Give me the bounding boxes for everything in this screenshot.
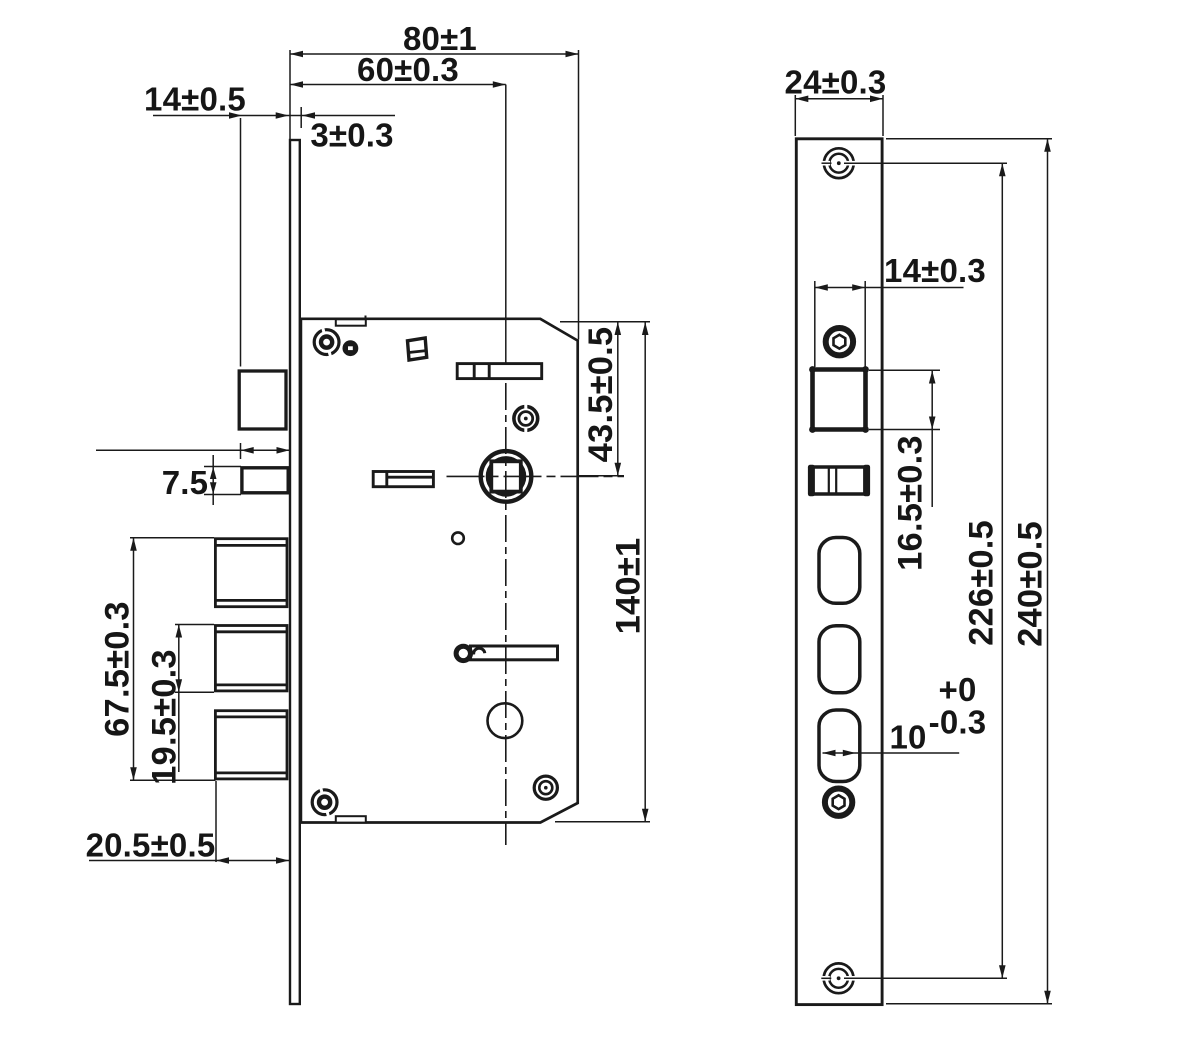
svg-text:7.5: 7.5 bbox=[162, 464, 208, 501]
svg-text:14±0.3: 14±0.3 bbox=[884, 252, 986, 289]
svg-text:43.5±0.5: 43.5±0.5 bbox=[582, 327, 620, 463]
svg-text:+0: +0 bbox=[938, 671, 976, 708]
svg-text:226±0.5: 226±0.5 bbox=[963, 520, 1001, 646]
svg-text:24±0.3: 24±0.3 bbox=[785, 64, 887, 101]
svg-text:60±0.3: 60±0.3 bbox=[357, 51, 459, 88]
svg-text:240±0.5: 240±0.5 bbox=[1012, 521, 1050, 647]
svg-text:67.5±0.3: 67.5±0.3 bbox=[99, 601, 137, 737]
svg-text:19.5±0.3: 19.5±0.3 bbox=[146, 649, 184, 785]
svg-text:3±0.3: 3±0.3 bbox=[310, 117, 393, 154]
svg-text:10: 10 bbox=[889, 719, 926, 756]
svg-text:-0.3: -0.3 bbox=[929, 704, 987, 741]
svg-text:14±0.5: 14±0.5 bbox=[144, 81, 246, 118]
svg-text:140±1: 140±1 bbox=[610, 538, 648, 635]
svg-text:16.5±0.3: 16.5±0.3 bbox=[892, 435, 930, 571]
svg-text:20.5±0.5: 20.5±0.5 bbox=[86, 827, 216, 864]
